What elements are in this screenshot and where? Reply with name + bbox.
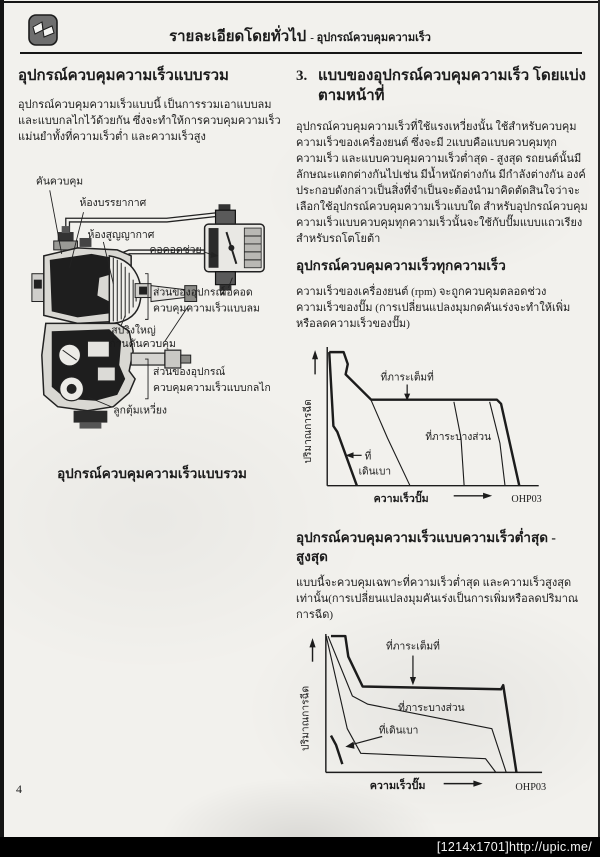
label-aux-venturi: คอคอดช่วย <box>149 245 201 256</box>
svg-text:ที่ภาระเต็มที่: ที่ภาระเต็มที่ <box>386 638 440 652</box>
page-number: 4 <box>16 782 22 797</box>
chart1-partial-annotation: ที่ภาระบางส่วน <box>425 429 491 443</box>
page-title-main: รายละเอียดโดยทั่วไป <box>169 29 306 45</box>
chart1-fullload-annotation: ที่ภาระเต็มที่ <box>381 369 434 400</box>
label-mechanical-section-2: ควบคุมความเร็วแบบกลไก <box>153 380 271 394</box>
chart2-xlabel: ความเร็วปั๊ม <box>370 777 426 792</box>
label-control-lever: คันควบคุม <box>36 176 83 188</box>
all-speed-governor-chart: ปริมาณการฉีด ที่ภาระเต็มที่ ที่ภาระบางส่… <box>296 342 576 512</box>
chart1-code: OHP03 <box>511 494 541 505</box>
chart2-code: OHP03 <box>515 782 546 793</box>
page-title: รายละเอียดโดยทั่วไป - อุปกรณ์ควบคุมความเ… <box>8 24 592 48</box>
curve-idle-line <box>331 735 342 764</box>
governor-cutaway-diagram: คันควบคุม ห้องบรรยากาศ ห้องสูญญากาศ คอคอ… <box>18 155 286 451</box>
right-paragraph-2: ความเร็วของเครื่องยนต์ (rpm) จะถูกควบคุม… <box>296 284 588 332</box>
right-paragraph-3: แบบนี้จะควบคุมเฉพาะที่ความเร็วต่ำสุด และ… <box>296 575 588 623</box>
label-flyweight: ลูกตุ้มเหวี่ยง <box>113 403 167 417</box>
chart1-ylabel: ปริมาณการฉีด <box>302 399 314 463</box>
scan-edge-left <box>0 0 4 838</box>
scanned-manual-page: รายละเอียดโดยทั่วไป - อุปกรณ์ควบคุมความเ… <box>0 0 600 857</box>
chart2-x-arrow <box>444 780 483 786</box>
label-atmosphere-chamber: ห้องบรรยากาศ <box>80 197 147 209</box>
scan-edge-top <box>0 1 600 3</box>
page-title-sub: - อุปกรณ์ควบคุมความเร็ว <box>310 32 431 44</box>
svg-text:เดินเบา: เดินเบา <box>359 465 391 477</box>
label-pneumatic-section-2: ควบคุมความเร็วแบบลม <box>153 301 260 315</box>
label-big-spring: สปริงใหญ่ <box>111 323 156 336</box>
subheading-all-speed: อุปกรณ์ควบคุมความเร็วทุกความเร็ว <box>296 257 588 276</box>
header-divider <box>20 52 582 54</box>
label-mechanical-section-1: ส่วนของอุปกรณ์ <box>153 365 225 378</box>
chart1-y-arrow <box>312 350 318 374</box>
svg-text:ที่ภาระเต็มที่: ที่ภาระเต็มที่ <box>381 369 434 383</box>
watermark-bar: [1214x1701]http://upic.me/ <box>0 837 600 857</box>
svg-text:ที่เดินเบา: ที่เดินเบา <box>379 722 419 736</box>
chart2-partial-annotation: ที่ภาระบางส่วน <box>398 700 464 714</box>
left-column: อุปกรณ์ควบคุมความเร็วแบบรวม อุปกรณ์ควบคุ… <box>18 62 286 484</box>
section3-heading: 3. แบบของอุปกรณ์ควบคุมความเร็ว โดยแบ่งตา… <box>296 66 588 107</box>
section3-number: 3. <box>296 66 318 107</box>
curve-partial-load-2 <box>454 402 464 486</box>
chart1-x-arrow <box>454 493 492 499</box>
min-max-governor-chart: ปริมาณการฉีด ที่ภาระเต็มที่ ที่ภาระบางส่… <box>296 633 576 799</box>
curve-idle-governing-line <box>329 352 357 486</box>
chart2-ylabel: ปริมาณการฉีด <box>299 686 311 751</box>
label-vacuum-chamber: ห้องสูญญากาศ <box>87 229 154 241</box>
right-column: 3. แบบของอุปกรณ์ควบคุมความเร็ว โดยแบ่งตา… <box>296 60 588 804</box>
page-header: รายละเอียดโดยทั่วไป - อุปกรณ์ควบคุมความเ… <box>8 8 592 54</box>
watermark-text: [1214x1701]http://upic.me/ <box>437 840 600 854</box>
right-paragraph-1: อุปกรณ์ควบคุมความเร็วที่ใช้แรงเหวี่ยงนั้… <box>296 119 588 247</box>
label-pneumatic-section-1: ส่วนของอุปกรณ์ <box>153 286 225 299</box>
subheading-min-max: อุปกรณ์ควบคุมความเร็วแบบความเร็วต่ำสุด -… <box>296 529 588 567</box>
chart1-xlabel: ความเร็วปั๊ม <box>374 490 429 505</box>
left-paragraph: อุปกรณ์ควบคุมความเร็วแบบนี้ เป็นการรวมเอ… <box>18 97 286 145</box>
diagram-caption: อุปกรณ์ควบคุมความเร็วแบบรวม <box>18 462 286 484</box>
section3-title: แบบของอุปกรณ์ควบคุมความเร็ว โดยแบ่งตามหน… <box>318 66 588 107</box>
chart2-fullload-annotation: ที่ภาระเต็มที่ <box>386 638 440 685</box>
left-heading: อุปกรณ์ควบคุมความเร็วแบบรวม <box>18 66 286 87</box>
svg-text:ที่: ที่ <box>365 448 372 462</box>
label-control-rod: ก้านคันควบคุม <box>109 338 176 350</box>
chart2-y-arrow <box>309 638 315 662</box>
